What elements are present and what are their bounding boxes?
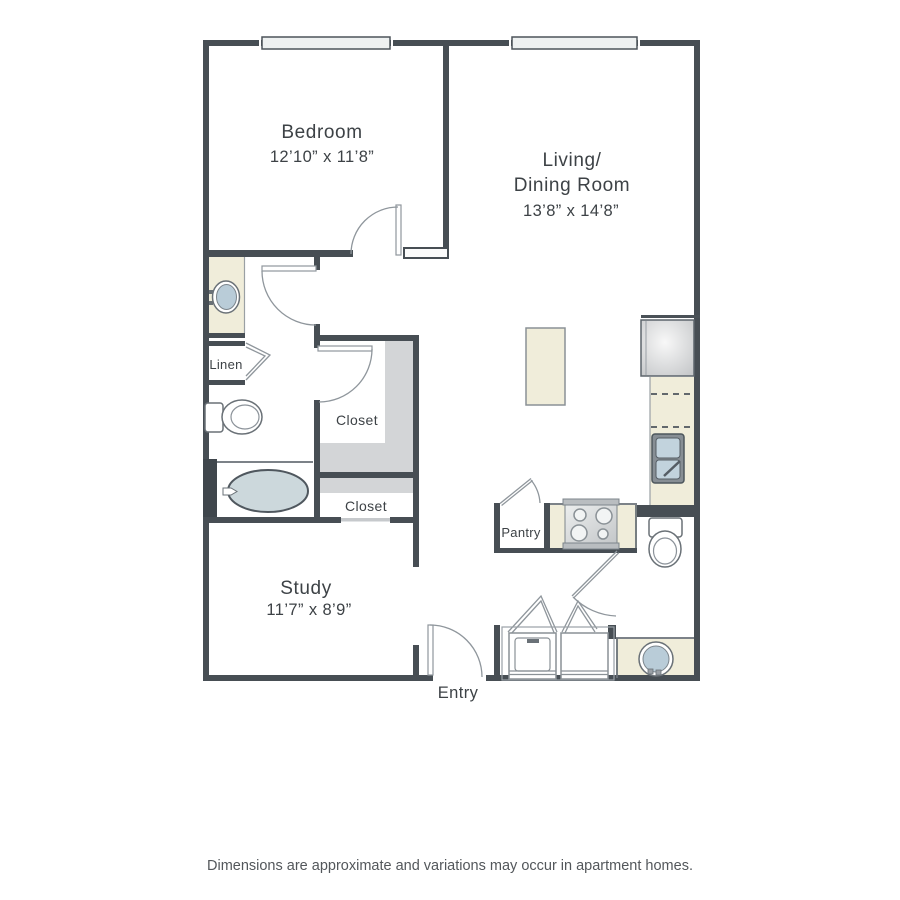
disclaimer-text: Dimensions are approximate and variation… [0, 858, 900, 874]
wall-closet-top [320, 335, 418, 341]
linen-label: Linen [209, 357, 242, 372]
wall-hall-stub-mid [314, 324, 320, 348]
window-gap [391, 40, 393, 47]
entry-label: Entry [438, 684, 479, 702]
wall-study-right-stub [413, 645, 419, 675]
closet-upper-shading-bottom [320, 443, 385, 472]
closet-lower-label: Closet [345, 498, 387, 514]
bath2-round-sink [639, 642, 673, 676]
living-room-label-line1: Living/ [542, 150, 601, 171]
wall-bedroom-bottom [203, 250, 353, 257]
study-dimensions: 11’7” x 8’9” [266, 601, 351, 619]
bedroom-label: Bedroom [281, 122, 362, 143]
bedroom-door [351, 205, 401, 255]
window-gap [638, 40, 640, 47]
bedroom-window [262, 37, 390, 49]
living-room-dimensions: 13’8” x 14’8” [523, 202, 619, 220]
kitchen-island [526, 328, 565, 405]
wall-outer-left [203, 40, 209, 681]
wall-linen-top [203, 341, 245, 346]
closet-lower-shelf [320, 478, 413, 493]
wall-hall-lower [314, 400, 320, 523]
bathroom2-door [572, 551, 619, 616]
wall-closet-divider [314, 472, 419, 478]
floor-plan-drawing: Bedroom 12’10” x 11’8” Living/ Dining Ro… [0, 0, 900, 900]
closet-door [318, 346, 372, 402]
bedroom-dimensions: 12’10” x 11’8” [270, 148, 374, 166]
bathtub [223, 470, 308, 512]
dryer [561, 633, 608, 679]
entry-door [428, 625, 482, 677]
wall-closet-right [413, 335, 419, 567]
living-room-window [512, 37, 637, 49]
bathroom1-door [262, 266, 316, 325]
wall-study-top-left [203, 517, 341, 523]
kitchen-sink [652, 434, 684, 483]
wall-pantry-bottom [494, 548, 550, 553]
floor-plan-page: Bedroom 12’10” x 11’8” Living/ Dining Ro… [0, 0, 900, 900]
wall-laundry-left [494, 625, 500, 681]
wall-outer-bottom-left [203, 675, 433, 681]
bath2-toilet [649, 518, 682, 567]
closet-sliding-door [341, 518, 390, 522]
closet-upper-shading [385, 341, 413, 472]
bath1-toilet [205, 400, 262, 434]
wall-outer-right [694, 40, 700, 681]
study-label: Study [280, 578, 332, 599]
pantry-door [500, 479, 540, 506]
living-room-label-line2: Dining Room [514, 175, 630, 196]
linen-bifold-door [246, 343, 270, 380]
closet-upper-label: Closet [336, 412, 378, 428]
wall-vanity-bottom [203, 333, 245, 338]
wall-tub-block [203, 459, 217, 517]
wall-bath2-top [637, 505, 700, 517]
wall-pantry-left [494, 503, 500, 553]
wall-fridge-top-line [641, 315, 700, 318]
wall-study-top-right [390, 517, 419, 523]
window-gap [259, 40, 261, 47]
stove [563, 499, 619, 549]
wall-door-jamb [404, 248, 448, 258]
washer [509, 633, 556, 679]
window-gap [509, 40, 511, 47]
wall-linen-bottom [203, 380, 245, 385]
laundry-bifold-doors [508, 596, 597, 635]
wall-bedroom-living-divider [443, 40, 449, 253]
refrigerator [641, 320, 694, 376]
wall-pantry-right [544, 503, 550, 553]
pantry-label: Pantry [501, 525, 541, 540]
